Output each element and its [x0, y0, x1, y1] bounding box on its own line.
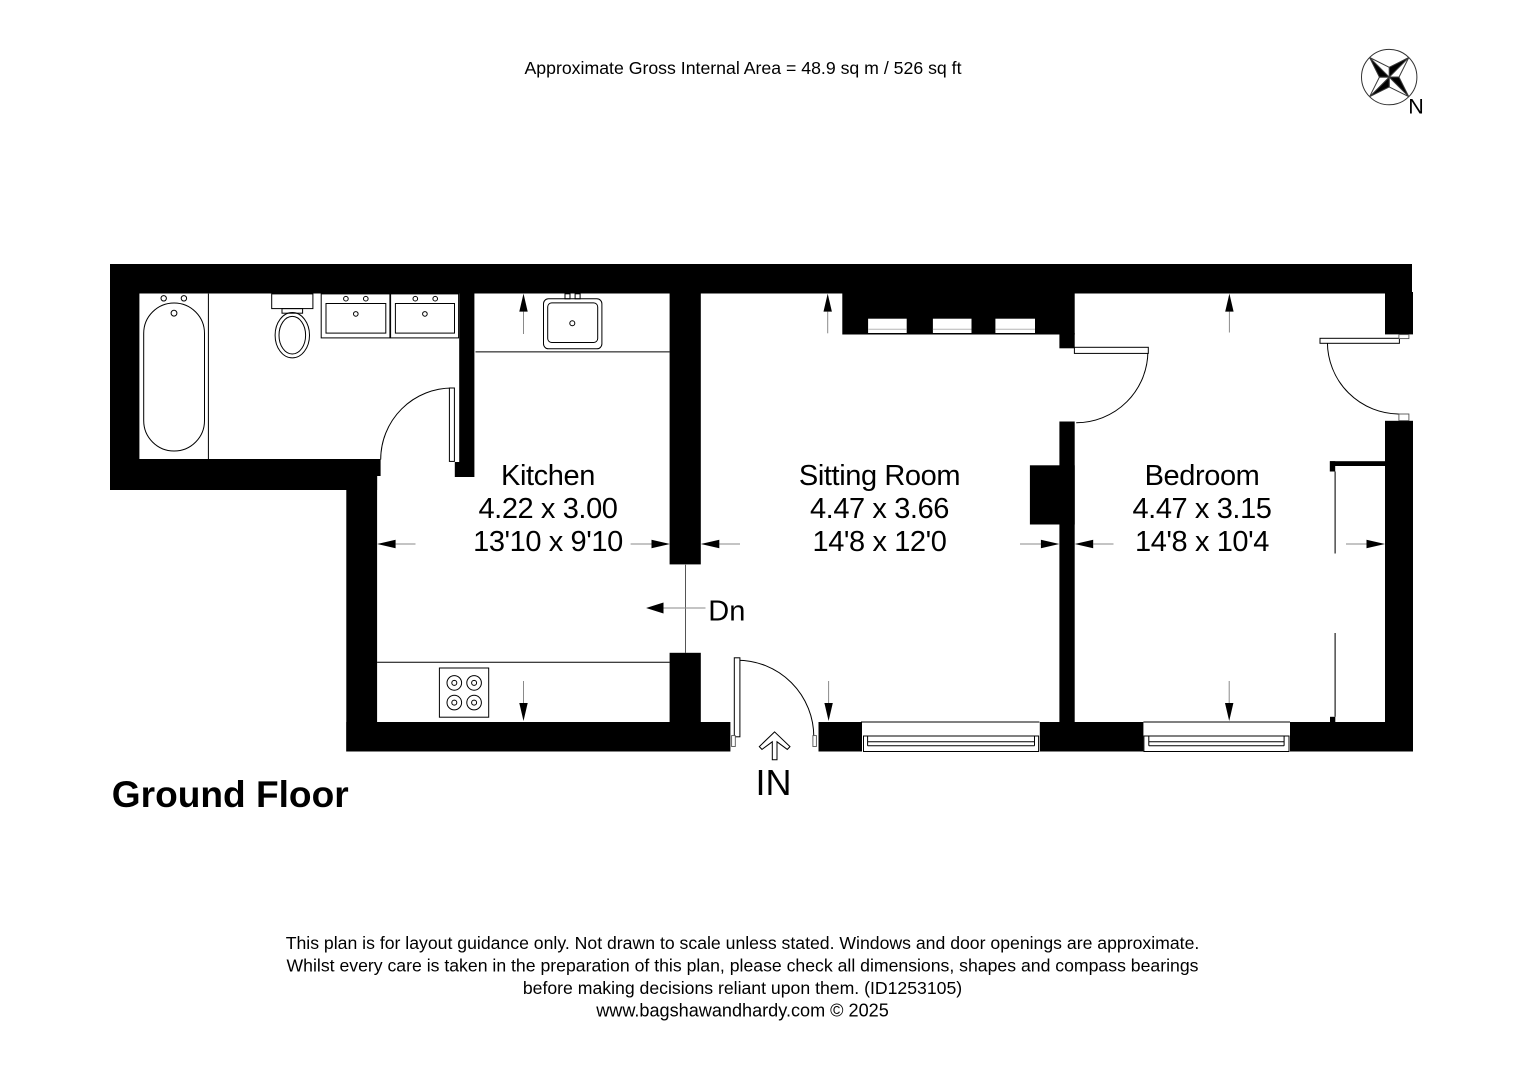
svg-text:13'10 x 9'10: 13'10 x 9'10 — [473, 526, 623, 558]
svg-text:www.bagshawandhardy.com © 2025: www.bagshawandhardy.com © 2025 — [595, 1001, 889, 1021]
svg-text:This plan is for layout guidan: This plan is for layout guidance only. N… — [286, 933, 1200, 953]
svg-text:IN: IN — [756, 762, 792, 803]
svg-text:4.47 x 3.15: 4.47 x 3.15 — [1132, 493, 1271, 525]
svg-text:Bedroom: Bedroom — [1145, 460, 1260, 492]
svg-text:14'8 x 12'0: 14'8 x 12'0 — [812, 526, 946, 558]
svg-text:Whilst every care is taken in: Whilst every care is taken in the prepar… — [287, 956, 1199, 976]
svg-text:Dn: Dn — [708, 596, 745, 628]
svg-text:N: N — [1408, 95, 1424, 119]
svg-text:before making decisions relian: before making decisions reliant upon the… — [523, 978, 962, 998]
svg-text:4.22 x 3.00: 4.22 x 3.00 — [478, 493, 617, 525]
svg-text:Ground Floor: Ground Floor — [112, 773, 349, 815]
svg-text:14'8 x 10'4: 14'8 x 10'4 — [1135, 526, 1269, 558]
svg-text:4.47 x 3.66: 4.47 x 3.66 — [810, 493, 949, 525]
svg-text:Kitchen: Kitchen — [501, 460, 595, 492]
svg-text:Approximate Gross Internal Are: Approximate Gross Internal Area = 48.9 s… — [524, 58, 961, 78]
svg-text:Sitting Room: Sitting Room — [799, 460, 960, 492]
